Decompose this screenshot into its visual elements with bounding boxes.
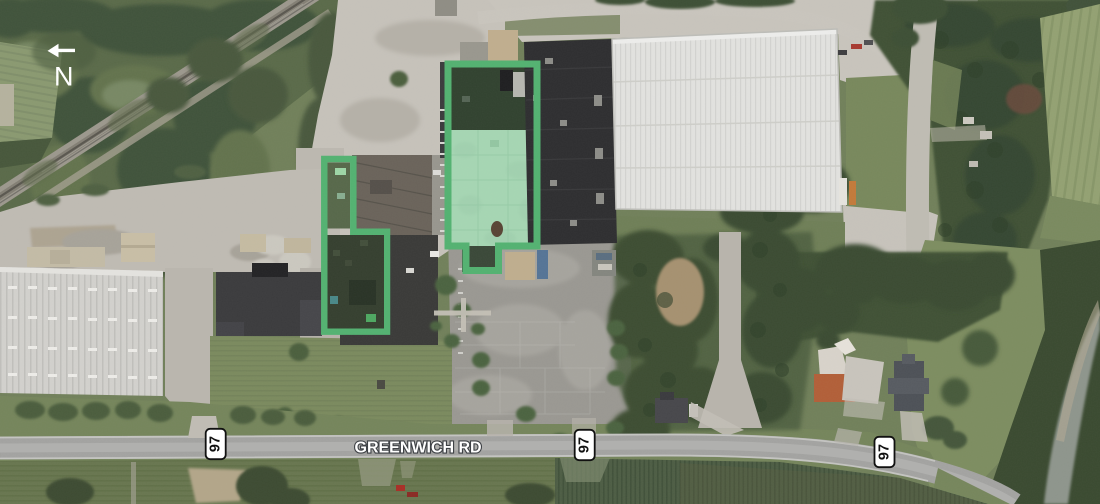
svg-text:97: 97 [208,436,224,452]
svg-text:97: 97 [877,444,893,460]
svg-text:97: 97 [577,437,593,453]
svg-text:GREENWICH RD: GREENWICH RD [355,440,482,457]
svg-text:N: N [54,62,74,92]
